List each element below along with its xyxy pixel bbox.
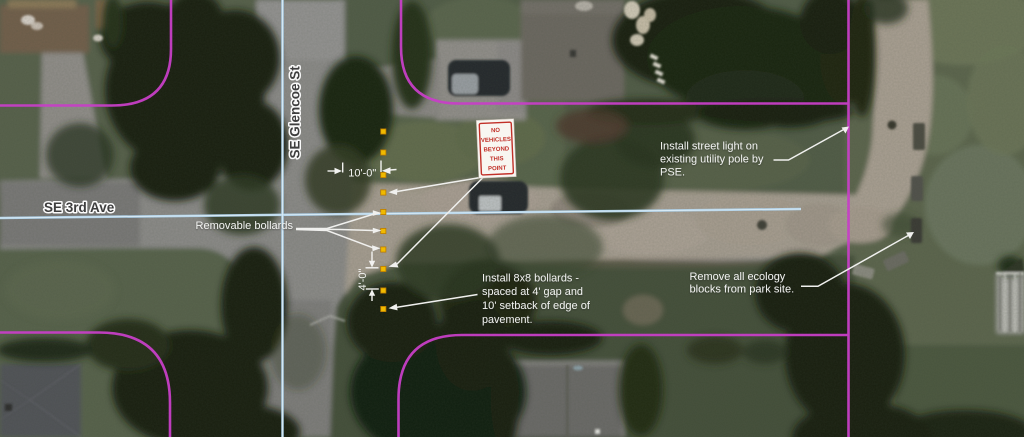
svg-text:Install street light on: Install street light on (660, 141, 758, 153)
svg-text:existing utility pole by: existing utility pole by (660, 154, 764, 166)
svg-text:BEYOND: BEYOND (483, 146, 510, 153)
svg-text:SE 3rd Ave: SE 3rd Ave (44, 200, 115, 215)
svg-text:Remove all ecology: Remove all ecology (690, 271, 786, 283)
svg-text:PSE.: PSE. (660, 167, 685, 179)
svg-text:10' setback of edge of: 10' setback of edge of (482, 300, 591, 312)
svg-text:blocks from park site.: blocks from park site. (690, 283, 795, 295)
svg-text:10'-0": 10'-0" (348, 168, 376, 180)
svg-text:4'-0": 4'-0" (357, 269, 369, 291)
svg-text:pavement.: pavement. (482, 314, 533, 326)
svg-text:Removable bollards: Removable bollards (196, 220, 294, 232)
svg-text:Install 8x8 bollards -: Install 8x8 bollards - (482, 272, 579, 284)
svg-text:SE Glencoe St: SE Glencoe St (288, 66, 303, 159)
svg-text:THIS: THIS (490, 156, 504, 163)
svg-text:spaced at 4' gap and: spaced at 4' gap and (482, 286, 583, 298)
svg-text:POINT: POINT (488, 166, 507, 173)
svg-text:NO: NO (491, 128, 501, 134)
